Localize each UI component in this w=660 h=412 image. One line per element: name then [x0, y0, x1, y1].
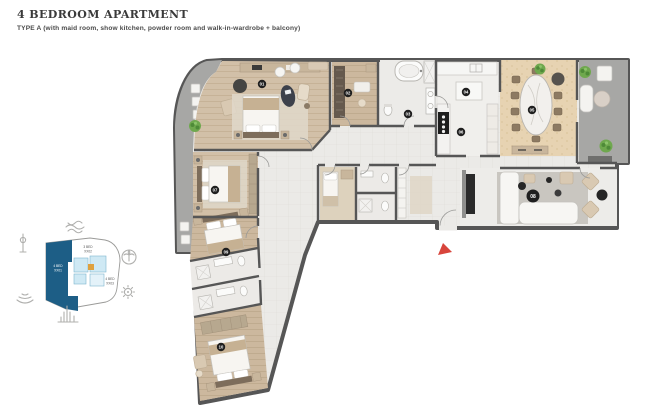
entrance-door-gap — [439, 226, 457, 231]
plant-icon — [535, 64, 546, 75]
svg-text:09: 09 — [224, 250, 229, 255]
keyplan-unit-label: 3 BED — [83, 245, 93, 249]
room-bedroom-2 — [193, 152, 258, 216]
keyplan-core — [88, 264, 94, 270]
svg-text:10: 10 — [219, 345, 224, 350]
svg-text:06: 06 — [459, 130, 464, 135]
monument-icon — [20, 234, 26, 252]
svg-text:04: 04 — [464, 90, 469, 95]
room-badge: 07 — [211, 186, 219, 194]
room-walk-in-wardrobe — [332, 62, 378, 126]
room-badge: 06 — [457, 128, 465, 136]
svg-text:02: 02 — [346, 91, 351, 96]
room-dining — [500, 60, 577, 156]
page: 4 BEDROOM APARTMENT TYPE A (with maid ro… — [0, 0, 660, 412]
palm-icon — [122, 250, 136, 264]
room-badge: 09 — [222, 248, 230, 256]
svg-text:03: 03 — [406, 112, 411, 117]
room-badge: 10 — [217, 343, 225, 351]
keyplan-adjacent-units — [74, 256, 106, 286]
yacht-icon — [17, 294, 33, 303]
floorplan: 01 02 03 04 05 06 07 08 09 10 — [175, 60, 628, 403]
plant-icon — [579, 66, 591, 78]
plant-icon — [600, 140, 613, 153]
entrance-arrow-icon — [438, 243, 452, 255]
keyplan: 4 BED XX01 3 BED XX02 4 BED XX03 — [17, 221, 136, 322]
room-badge: 04 — [462, 88, 470, 96]
room-kitchen — [437, 62, 498, 156]
waves-icon — [66, 221, 84, 233]
room-badge: 05 — [528, 106, 536, 114]
room-master-bedroom — [194, 61, 330, 150]
svg-text:05: 05 — [530, 108, 535, 113]
svg-text:08: 08 — [530, 194, 536, 200]
svg-text:07: 07 — [213, 188, 218, 193]
keyplan-unit-number: XX01 — [54, 269, 62, 273]
plan-canvas: 01 02 03 04 05 06 07 08 09 10 — [0, 0, 660, 412]
room-badge: 03 — [404, 110, 412, 118]
compass-icon — [122, 286, 135, 299]
svg-text:01: 01 — [260, 82, 265, 87]
plant-icon — [189, 120, 201, 132]
keyplan-unit-number: XX03 — [106, 282, 114, 286]
keyplan-unit-number: XX02 — [84, 250, 92, 254]
room-badge: 02 — [344, 89, 352, 97]
room-bedroom-4 — [187, 305, 268, 401]
room-badge: 08 — [527, 190, 540, 203]
room-badge: 01 — [258, 80, 266, 88]
keyplan-unit-label: 4 BED — [53, 264, 63, 268]
keyplan-unit-label: 4 BED — [105, 277, 115, 281]
